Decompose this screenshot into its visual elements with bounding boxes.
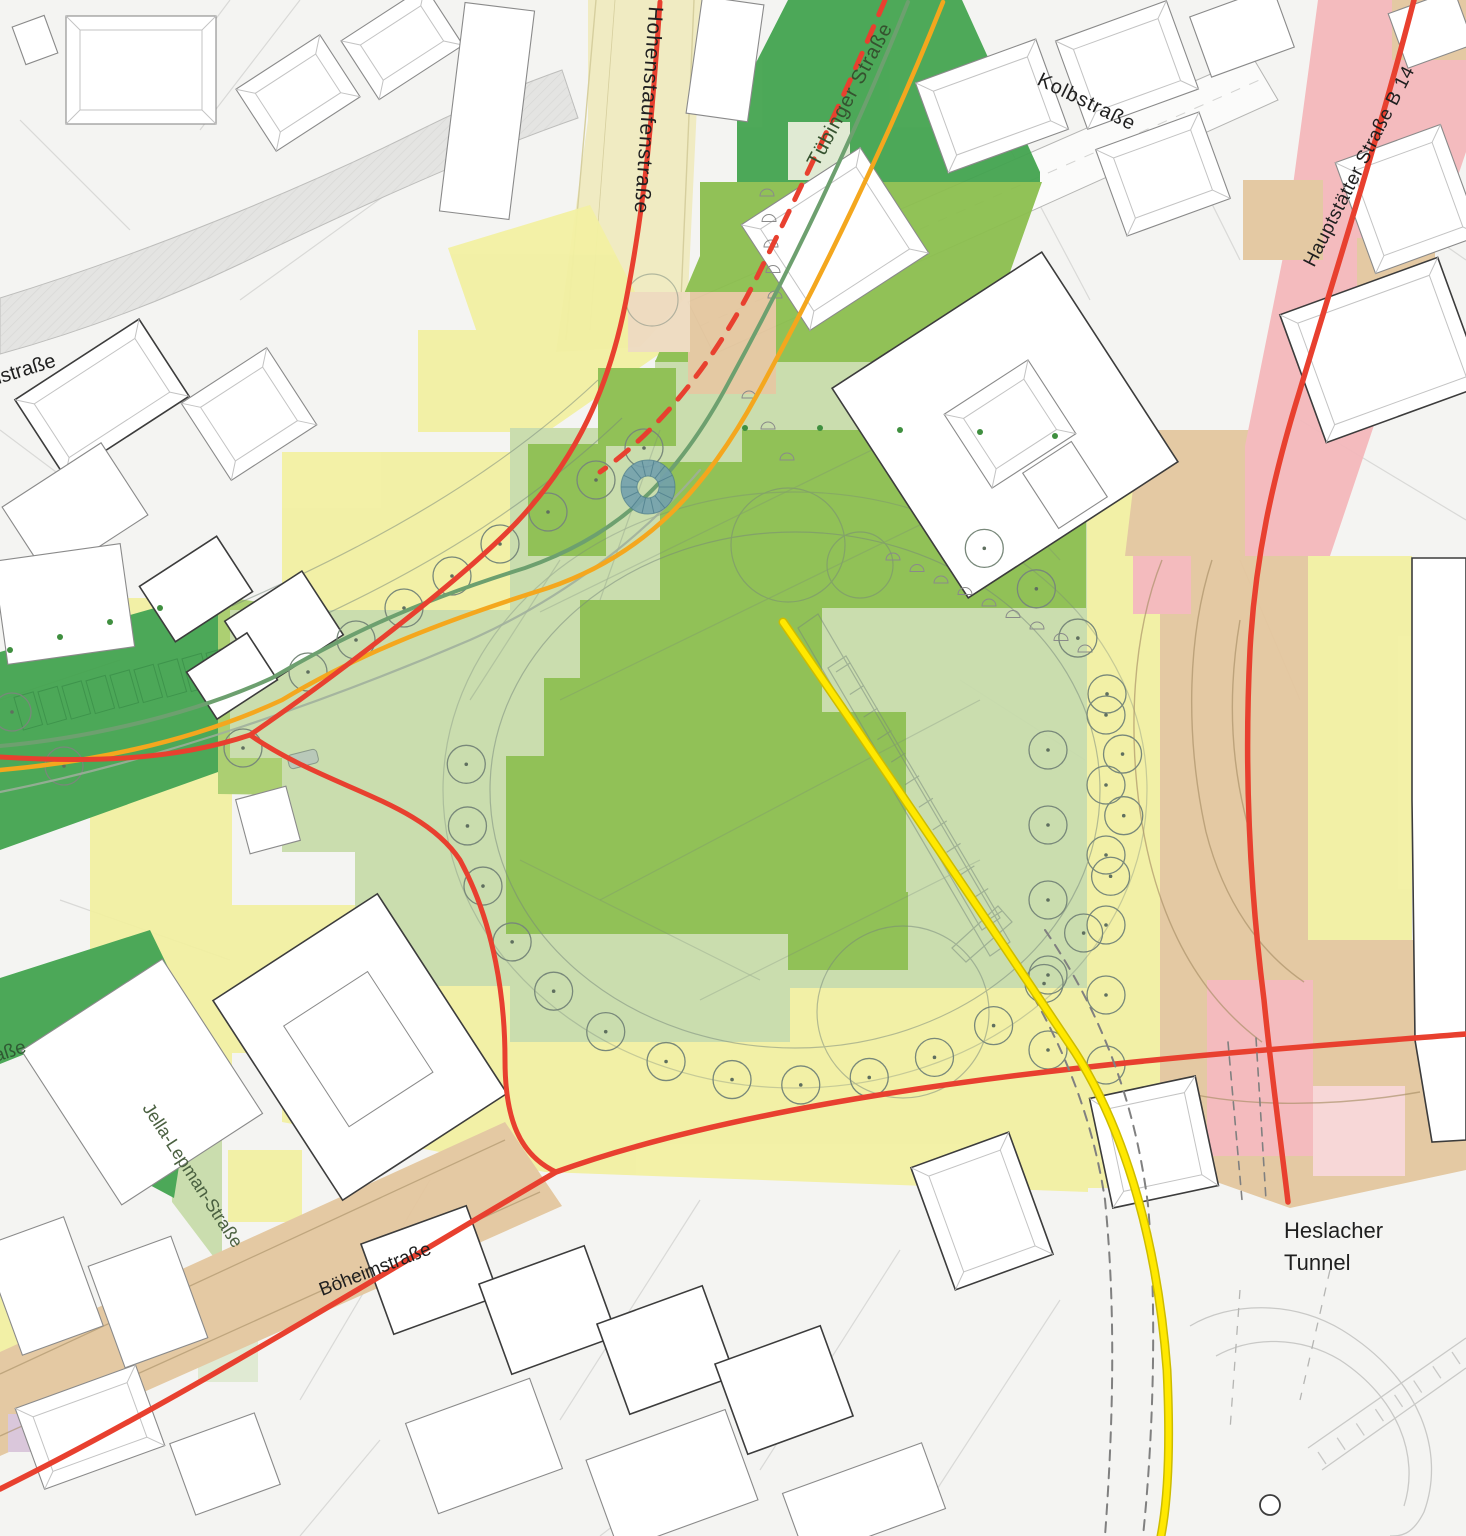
tree-trunk	[466, 824, 470, 828]
heat-cell	[1133, 556, 1191, 614]
tree-trunk	[1104, 853, 1108, 857]
tree-trunk	[1104, 783, 1108, 787]
building-footprint	[1090, 1076, 1219, 1208]
tunnel-shaft-circle	[1260, 1495, 1280, 1515]
small-tree-dot	[742, 425, 748, 431]
tree-trunk	[1121, 752, 1125, 756]
map-canvas: Hohenstaufenstraße Tübinger Straße Kolbs…	[0, 0, 1466, 1536]
small-tree-dot	[1052, 433, 1058, 439]
tree-trunk	[867, 1076, 871, 1080]
building	[1090, 1076, 1219, 1208]
heat-cell	[228, 1150, 302, 1222]
tree-trunk	[464, 762, 468, 766]
small-tree-dot	[897, 427, 903, 433]
tree-trunk	[1122, 814, 1126, 818]
small-tree-dot	[977, 429, 983, 435]
tree-trunk	[1046, 973, 1050, 977]
tree-trunk	[1046, 748, 1050, 752]
tree-trunk	[10, 710, 14, 714]
heat-cell	[282, 452, 520, 610]
tree-trunk	[546, 510, 550, 514]
tree-trunk	[1076, 636, 1080, 640]
tree-trunk	[1104, 923, 1108, 927]
tree-trunk	[933, 1056, 937, 1060]
tree-trunk	[1046, 898, 1050, 902]
small-tree-dot	[7, 647, 13, 653]
tree-trunk	[241, 746, 245, 750]
tree-trunk	[1042, 982, 1046, 986]
tree-trunk	[1105, 692, 1109, 696]
tree-trunk	[799, 1083, 803, 1087]
tree-trunk	[642, 446, 646, 450]
building-footprint	[0, 544, 135, 665]
tree-trunk	[1035, 587, 1039, 591]
tree-trunk	[481, 884, 485, 888]
small-tree-dot	[107, 619, 113, 625]
building-footprint	[66, 16, 216, 124]
heat-cell	[510, 986, 790, 1042]
tree-trunk	[450, 574, 454, 578]
small-tree-dot	[57, 634, 63, 640]
heat-cell	[418, 330, 520, 432]
tree-trunk	[664, 1060, 668, 1064]
tree-trunk	[730, 1078, 734, 1082]
tree-trunk	[510, 940, 514, 944]
label-heslacher-tunnel-line2: Tunnel	[1284, 1250, 1350, 1275]
tree-trunk	[306, 670, 310, 674]
tree-trunk	[992, 1024, 996, 1028]
building-footprint	[1412, 558, 1466, 1142]
heat-cell	[1313, 1086, 1405, 1176]
tree-trunk	[354, 638, 358, 642]
small-tree-dot	[817, 425, 823, 431]
tree-trunk	[1109, 874, 1113, 878]
tree-trunk	[1104, 993, 1108, 997]
site-plan-map: Hohenstaufenstraße Tübinger Straße Kolbs…	[0, 0, 1466, 1536]
tree-trunk	[1046, 1048, 1050, 1052]
building	[0, 544, 135, 665]
small-tree-dot	[157, 605, 163, 611]
heat-cell	[788, 892, 908, 970]
tree-trunk	[1046, 823, 1050, 827]
tree-trunk	[1082, 931, 1086, 935]
tree-trunk	[604, 1030, 608, 1034]
tree-trunk	[552, 989, 556, 993]
tree-trunk	[1104, 713, 1108, 717]
label-heslacher-tunnel-line1: Heslacher	[1284, 1218, 1383, 1243]
heat-cell	[598, 368, 676, 446]
tree-trunk	[982, 547, 986, 551]
building	[66, 16, 216, 124]
tree-trunk	[594, 478, 598, 482]
